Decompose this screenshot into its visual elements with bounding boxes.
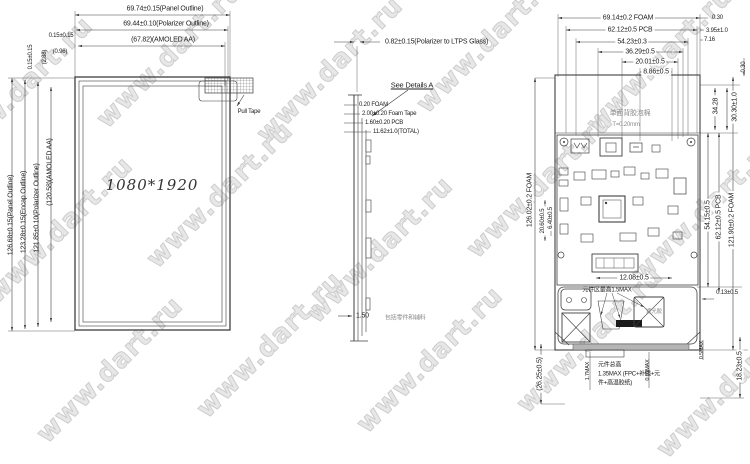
dim-right-1823: 18.23±0.5 <box>737 349 744 382</box>
fpc-stiffener-bar <box>573 344 689 350</box>
dim-gap-top-1: 0.15±0.15 <box>49 33 74 39</box>
dim-amoled-aa-width: (67.82)(AMOLED AA) <box>131 37 195 44</box>
shading-tape-label: 遮光胶 <box>646 307 662 315</box>
stack-dim-pcb: 1.60±0.20 PCB <box>365 120 403 126</box>
dim-panel-outline-width: 69.74±0.15(Panel Outline) <box>127 6 204 13</box>
dim-right-030: 0.30 <box>712 15 723 21</box>
dim-bottom-width: 12.08±0.5 <box>617 275 650 282</box>
dim-right-3428: 34.28 <box>713 96 720 117</box>
dim-fpc-max: 1.7MAX <box>585 362 591 380</box>
dim-left-foam-height: 126.02±0.2 FOAM <box>527 171 534 229</box>
dim-right-foam-height: 121.90±0.2 FOAM <box>729 191 736 249</box>
pull-tape-hatch <box>205 78 253 93</box>
dim-top-20: 20.01±0.5 <box>633 59 666 66</box>
dim-top-36: 36.29±0.5 <box>623 49 656 56</box>
dim-polarizer-outline-width: 69.44±0.10(Polarizer Outline) <box>123 21 209 28</box>
dim-gap-side-1: 0.15±0.15 <box>28 45 34 70</box>
pull-tape-label: Pull Tape <box>238 109 261 115</box>
dim-top-8: 8.86±0.5 <box>641 69 671 76</box>
foam-note-line1: 单面背胶泡棉 <box>610 108 651 118</box>
dim-gap-top-2: (0.96) <box>53 49 67 55</box>
stack-dim-foam-tape: 2.00±0.20 Foam Tape <box>362 111 416 117</box>
stack-dim-foam: 0.20 FOAM <box>359 102 388 108</box>
stack-dim-total: 11.62±1.0(TOTAL) <box>373 129 419 135</box>
dim-amoled-aa-height: (120.58)(AMOLED AA) <box>47 138 54 205</box>
shading-tape-bar <box>616 320 642 327</box>
dim-right-rot-030: 0.30 <box>741 62 747 73</box>
dim-top-54: 54.23±0.3 <box>615 39 648 46</box>
component-total-note-3: 件+高温胶纸) <box>598 378 632 387</box>
dim-encap-outline-height: 123.28±0.15(Encap Outline) <box>21 171 28 253</box>
dim-pcb-width: 62.12±0.5 PCB <box>606 27 655 34</box>
see-details-a-label: See Details A <box>391 81 433 90</box>
panel-spec-drawing-sheet: { "watermark": { "text": "www.dart.ru" }… <box>0 0 750 415</box>
dim-right-395: 3.95±1.0 <box>706 28 728 34</box>
dim-polarizer-outline-height: 121.85±0.10(Polarizer Outline) <box>34 163 41 252</box>
dim-right-013: 0.13±0.5 <box>716 290 738 296</box>
dim-panel-outline-height: 126.68±0.15(Panel Outline) <box>8 175 15 255</box>
dim-gap-side-2: (2.88) <box>42 50 48 64</box>
component-area-note: 元件区最高1.5MAX <box>582 285 631 294</box>
dim-left-2060: 20.60±0.5 <box>540 207 546 236</box>
foam-note-line2: T=0.20mm <box>612 122 639 128</box>
dim-left-2625: (26.25±0.5) <box>537 355 544 393</box>
dim-connector-max: 0.65MAX <box>645 359 651 380</box>
dim-bottom-value: 1.50 <box>356 313 369 320</box>
dim-foam-width: 69.14±0.2 FOAM <box>601 15 655 22</box>
component-total-note-1: 元件总高 <box>598 360 621 369</box>
dim-right-pcb-height: 62.12±0.5 PCB <box>716 193 723 242</box>
dim-bottom-note: 包括零件和辅料 <box>385 313 426 322</box>
panel-resolution: 1080*1920 <box>106 176 199 194</box>
dim-left-640: 6.40±0.5 <box>548 205 554 231</box>
dim-right-716: 7.16 <box>704 37 715 43</box>
dim-polarizer-to-glass: 0.82±0.15(Polarizer to LTPS Glass) <box>385 39 488 46</box>
dim-bar-max: 0.5MAX <box>699 341 705 359</box>
dim-right-5415: 54.15±0.5 <box>705 198 712 231</box>
dim-right-3030: 30.30±1.0 <box>732 90 739 123</box>
